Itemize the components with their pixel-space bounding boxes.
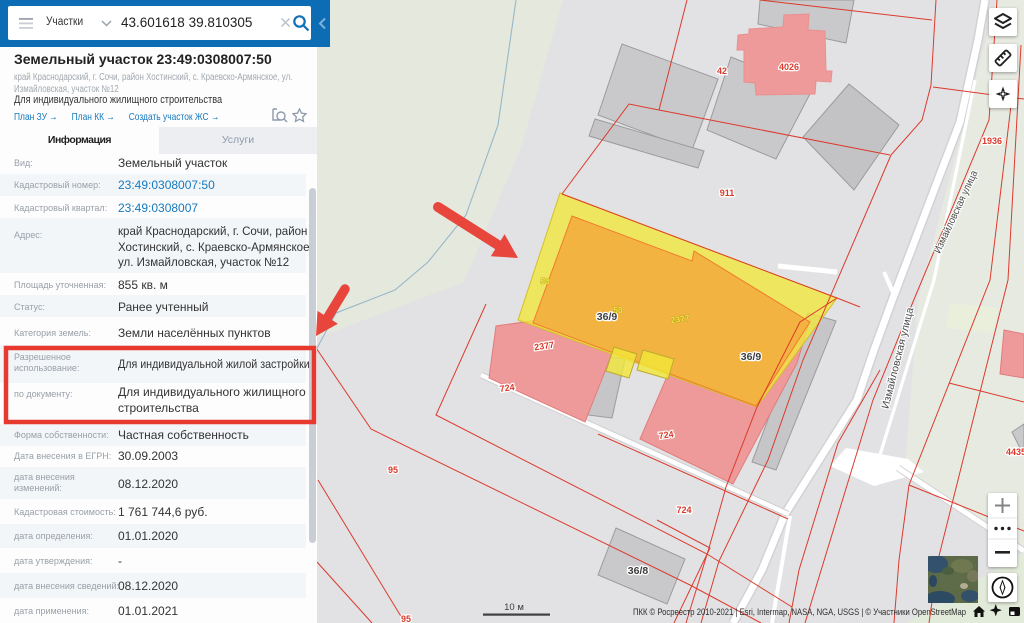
svg-text:724: 724 [499, 382, 515, 394]
svg-text:4435: 4435 [1006, 447, 1024, 457]
svg-text:724: 724 [676, 505, 691, 515]
svg-text:50: 50 [540, 276, 550, 286]
svg-text:10 м: 10 м [504, 602, 524, 613]
svg-text:50: 50 [613, 305, 623, 315]
svg-text:42: 42 [717, 66, 727, 76]
svg-text:724: 724 [658, 429, 674, 441]
svg-text:1936: 1936 [982, 136, 1002, 146]
svg-text:4026: 4026 [779, 62, 799, 72]
svg-text:36/8: 36/8 [628, 565, 649, 577]
svg-text:95: 95 [388, 465, 398, 475]
svg-text:95: 95 [401, 614, 411, 623]
svg-text:36/9: 36/9 [741, 351, 762, 363]
svg-text:ПКК © Росреестр 2010-2021 | Es: ПКК © Росреестр 2010-2021 | Esri, Interm… [633, 607, 966, 618]
svg-text:911: 911 [720, 188, 735, 198]
